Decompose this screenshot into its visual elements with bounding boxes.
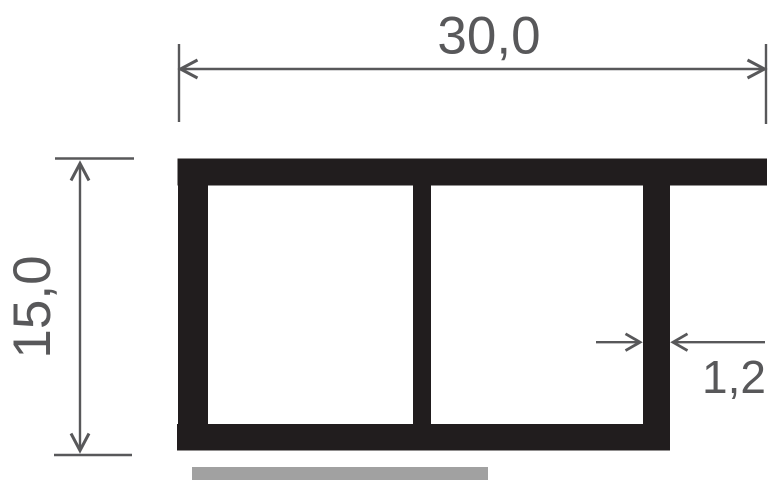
svg-text:30,0: 30,0: [437, 7, 540, 66]
svg-text:15,0: 15,0: [3, 255, 62, 358]
svg-text:1,2: 1,2: [702, 351, 766, 403]
